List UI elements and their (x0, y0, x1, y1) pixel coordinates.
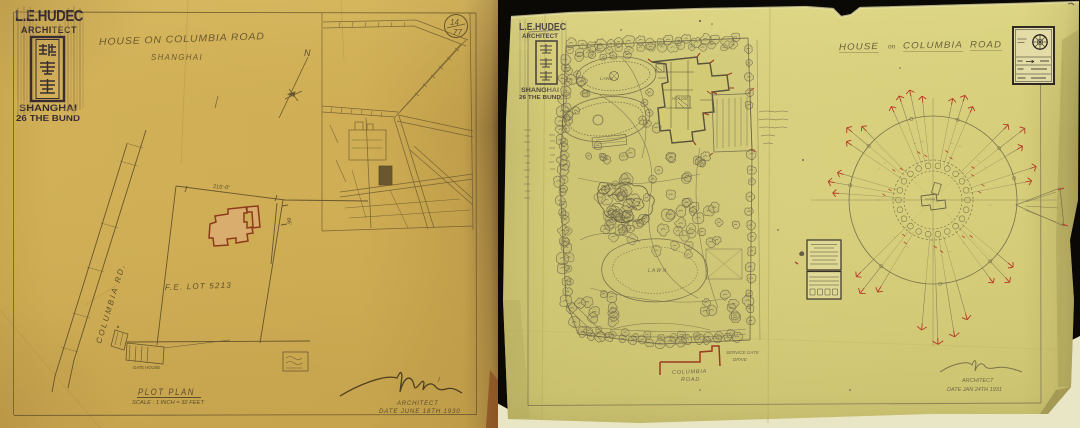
svg-text:ROAD: ROAD (681, 377, 700, 383)
svg-text:on: on (888, 44, 896, 51)
svg-text:COLUMBIA: COLUMBIA (903, 39, 963, 50)
svg-text:PLOT PLAN: PLOT PLAN (138, 387, 195, 397)
svg-text:ARCHITECT: ARCHITECT (396, 401, 439, 407)
svg-text:L A W N: L A W N (648, 268, 667, 274)
svg-text:L.E.HUDEC: L.E.HUDEC (519, 21, 566, 33)
svg-text:86': 86' (285, 217, 292, 225)
svg-text:SERVICE GATE: SERVICE GATE (726, 350, 760, 355)
svg-text:ARCHITECT: ARCHITECT (522, 33, 558, 40)
svg-text:DRIVE: DRIVE (733, 357, 748, 362)
svg-text:HOUSE: HOUSE (839, 41, 879, 52)
svg-text:14: 14 (450, 18, 459, 27)
svg-text:LAWN: LAWN (600, 76, 614, 81)
svg-text:SHANGHAI: SHANGHAI (151, 52, 203, 62)
svg-text:SCALE : 1 INCH = 32 FEET: SCALE : 1 INCH = 32 FEET (132, 400, 205, 406)
svg-text:COLUMBIA: COLUMBIA (672, 369, 707, 376)
svg-text:ARCHITECT: ARCHITECT (961, 378, 994, 384)
svg-text:ROAD: ROAD (970, 40, 1002, 50)
svg-text:DATE JAN 24TH 1931: DATE JAN 24TH 1931 (947, 387, 1002, 393)
svg-text:N: N (304, 48, 311, 58)
svg-text:HOUSE: HOUSE (672, 96, 689, 101)
svg-text:77: 77 (453, 28, 462, 37)
svg-text:GATE HOUSE: GATE HOUSE (133, 365, 160, 370)
svg-text:DATE JUNE 18TH 1930: DATE JUNE 18TH 1930 (379, 408, 460, 415)
